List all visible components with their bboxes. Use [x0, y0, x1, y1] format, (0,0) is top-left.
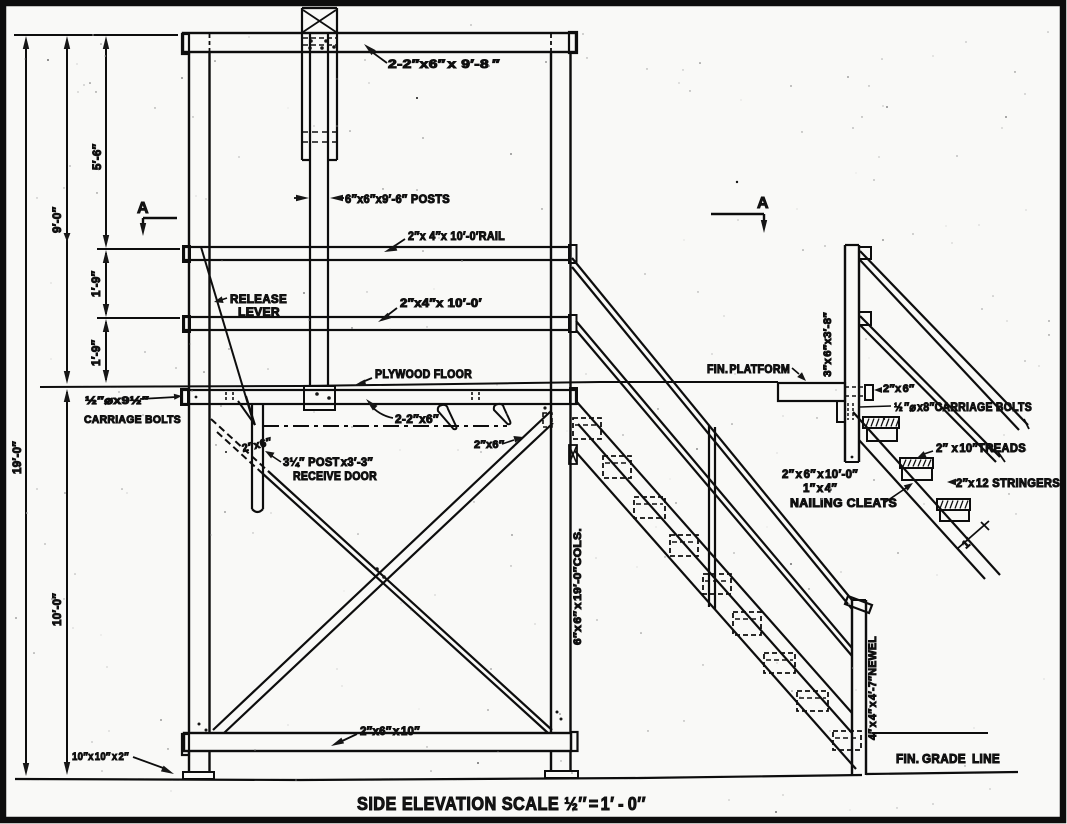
svg-text:10″x 10″ x 2″: 10″x 10″ x 2″: [72, 751, 129, 763]
svg-text:2″x4″x 10′-0′: 2″x4″x 10′-0′: [400, 298, 482, 310]
svg-text:SIDE ELEVATION SCALE ½′′ = 1′: SIDE ELEVATION SCALE ½′′ = 1′ - 0′′: [357, 794, 646, 814]
svg-text:6″x6″x9′-6″ POSTS: 6″x6″x9′-6″ POSTS: [345, 194, 450, 206]
svg-text:2″ x 10″TREADS: 2″ x 10″TREADS: [936, 443, 1026, 455]
svg-text:4″ x 4″ x 4′-7″NEWEL: 4″ x 4″ x 4′-7″NEWEL: [867, 636, 879, 740]
svg-text:2″x6″: 2″x6″: [474, 439, 505, 451]
svg-text:10′-0″: 10′-0″: [52, 593, 64, 626]
svg-text:CARRIAGE BOLTS: CARRIAGE BOLTS: [84, 414, 181, 426]
svg-text:½″⌀x9½″: ½″⌀x9½″: [85, 395, 150, 407]
svg-text:LEVER: LEVER: [238, 307, 280, 319]
svg-text:1′-9″: 1′-9″: [91, 339, 103, 366]
svg-text:½ ″⌀ x8″CARRIAGE BOLTS: ½ ″⌀ x8″CARRIAGE BOLTS: [894, 402, 1032, 414]
svg-text:5′-6″: 5′-6″: [92, 143, 104, 170]
svg-text:NAILING CLEATS: NAILING CLEATS: [790, 498, 897, 510]
svg-text:1″ x 4″: 1″ x 4″: [803, 483, 837, 495]
svg-text:2″ x 6″ x 10′-0″: 2″ x 6″ x 10′-0″: [782, 469, 858, 481]
svg-text:3¼″ POST x3′-3″: 3¼″ POST x3′-3″: [283, 457, 373, 469]
svg-text:2″x 6″: 2″x 6″: [883, 383, 915, 395]
svg-text:2″x6″ x 10″: 2″x6″ x 10″: [360, 726, 420, 738]
svg-text:FIN. GRADE LINE: FIN. GRADE LINE: [896, 752, 1000, 766]
svg-text:6″x 6″ x 19′-0″COLS.: 6″x 6″ x 19′-0″COLS.: [572, 528, 584, 645]
svg-text:RELEASE: RELEASE: [230, 294, 287, 306]
svg-text:A: A: [757, 195, 769, 212]
svg-text:2-2″x6″ x 9′-8 ″: 2-2″x6″ x 9′-8 ″: [388, 59, 500, 71]
svg-text:PLYWOOD FLOOR: PLYWOOD FLOOR: [375, 369, 472, 381]
svg-text:RECEIVE DOOR: RECEIVE DOOR: [293, 471, 377, 483]
svg-text:2-2″x6″: 2-2″x6″: [395, 414, 439, 426]
svg-text:1′: 1′: [960, 536, 975, 551]
svg-text:FIN. PLATFORM: FIN. PLATFORM: [707, 364, 790, 376]
svg-text:9′-0″: 9′-0″: [52, 206, 64, 233]
svg-text:19′-0″: 19′-0″: [12, 441, 24, 474]
svg-text:2″x 12 STRINGERS: 2″x 12 STRINGERS: [956, 478, 1060, 490]
svg-text:2″x 4″x 10′-0′RAIL: 2″x 4″x 10′-0′RAIL: [408, 231, 505, 243]
svg-text:1′-9″: 1′-9″: [91, 270, 103, 297]
svg-text:A: A: [137, 200, 149, 217]
svg-text:3″x 6″x3′-8″: 3″x 6″x3′-8″: [822, 312, 834, 378]
